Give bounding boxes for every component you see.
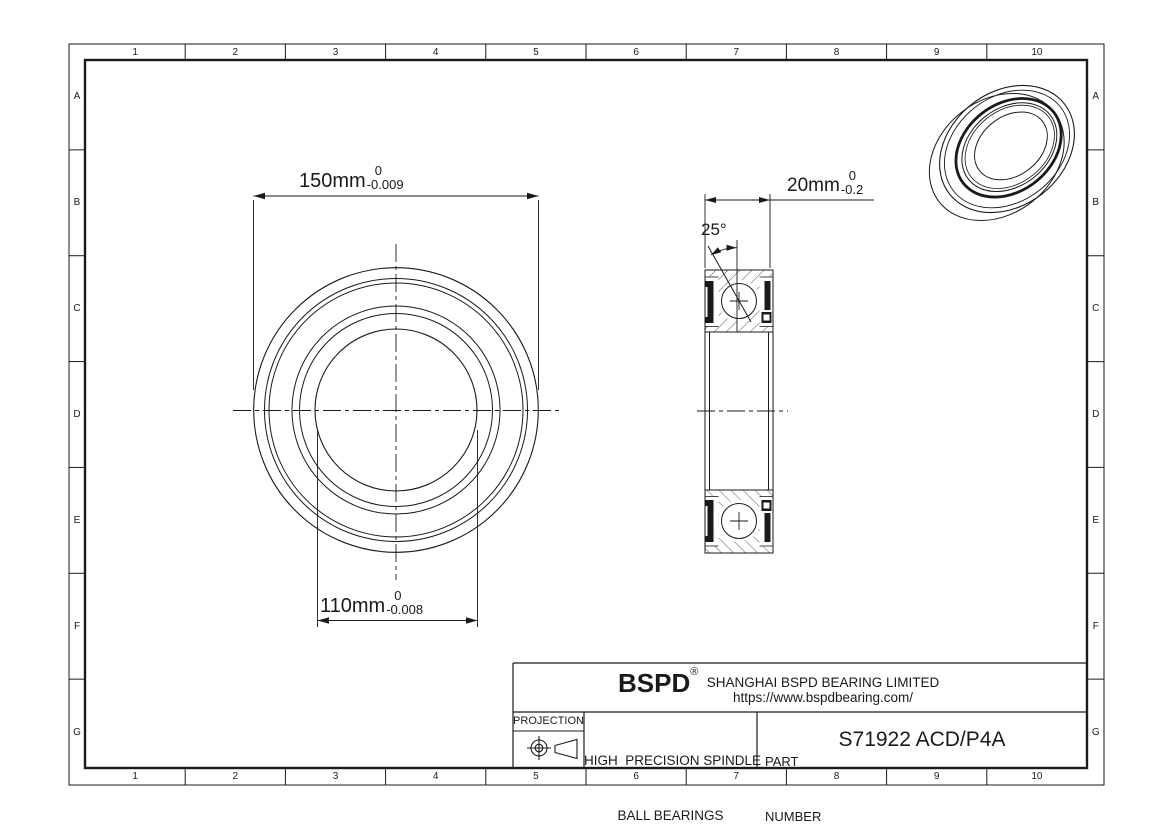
grid-tick-lines	[69, 44, 1104, 785]
sheet-border-frame	[69, 44, 1104, 785]
grid-row-label: C	[69, 256, 85, 362]
front-view-centerlines	[233, 244, 560, 580]
section-view	[697, 270, 788, 553]
product-description: HIGH PRECISION SPINDLE BALL BEARINGS	[584, 716, 757, 827]
bore-dimension-tolerance: 0-0.008	[386, 589, 423, 616]
grid-column-label: 10	[987, 44, 1087, 60]
od-dimension-tolerance: 0-0.009	[367, 164, 404, 191]
product-line-1: HIGH PRECISION SPINDLE	[584, 752, 757, 770]
grid-column-label: 2	[185, 44, 285, 60]
grid-column-label: 1	[85, 769, 185, 785]
grid-row-label: G	[1088, 679, 1105, 785]
grid-row-label: B	[69, 150, 85, 256]
grid-row-label: D	[69, 362, 85, 468]
first-angle-projection-icon	[527, 736, 577, 760]
width-dimension-value: 20mm	[787, 176, 840, 195]
grid-column-label: 10	[987, 769, 1087, 785]
drawing-sheet: 1122334455667788991010AABBCCDDEEFFGG 150…	[0, 0, 1170, 827]
registered-trademark-icon: ®	[690, 667, 698, 678]
grid-row-label: G	[69, 679, 85, 785]
grid-column-label: 4	[386, 769, 486, 785]
width-dimension-text: 20mm0-0.2	[787, 176, 863, 196]
grid-row-label: F	[1088, 573, 1105, 679]
projection-label: PROJECTION	[513, 715, 584, 727]
drawing-geometry	[0, 0, 1170, 827]
grid-row-label: E	[1088, 467, 1105, 573]
od-dimension-value: 150mm	[299, 171, 366, 191]
grid-column-label: 5	[486, 44, 586, 60]
contact-angle-text: 25°	[701, 221, 727, 238]
grid-column-label: 9	[887, 44, 987, 60]
grid-column-label: 6	[586, 44, 686, 60]
grid-column-label: 3	[285, 44, 385, 60]
company-website: https://www.bspdbearing.com/	[703, 690, 943, 706]
grid-row-label: F	[69, 573, 85, 679]
product-line-2: BALL BEARINGS	[584, 807, 757, 825]
width-dimension-lines	[705, 194, 874, 268]
company-logo: BSPD ®	[618, 670, 698, 696]
grid-column-label: 4	[386, 44, 486, 60]
grid-column-label: 8	[786, 44, 886, 60]
width-dimension-tolerance: 0-0.2	[841, 169, 863, 196]
grid-column-label: 2	[185, 769, 285, 785]
grid-row-label: B	[1088, 150, 1105, 256]
grid-column-label: 3	[285, 769, 385, 785]
grid-column-label: 5	[486, 769, 586, 785]
isometric-bearing-view	[904, 59, 1099, 247]
bore-dimension-value: 110mm	[320, 596, 385, 616]
company-logo-text: BSPD	[618, 670, 690, 696]
company-name: SHANGHAI BSPD BEARING LIMITED	[703, 675, 943, 691]
grid-row-label: C	[1088, 256, 1105, 362]
grid-row-label: A	[69, 44, 85, 150]
grid-column-label: 9	[887, 769, 987, 785]
grid-column-label: 1	[85, 44, 185, 60]
grid-column-label: 7	[686, 44, 786, 60]
grid-row-label: D	[1088, 362, 1105, 468]
grid-row-label: E	[69, 467, 85, 573]
front-view	[233, 244, 560, 580]
od-dimension-text: 150mm0-0.009	[299, 171, 404, 191]
grid-row-label: A	[1088, 44, 1105, 150]
part-number-value: S71922 ACD/P4A	[757, 712, 1087, 768]
bore-dimension-text: 110mm0-0.008	[320, 596, 423, 616]
